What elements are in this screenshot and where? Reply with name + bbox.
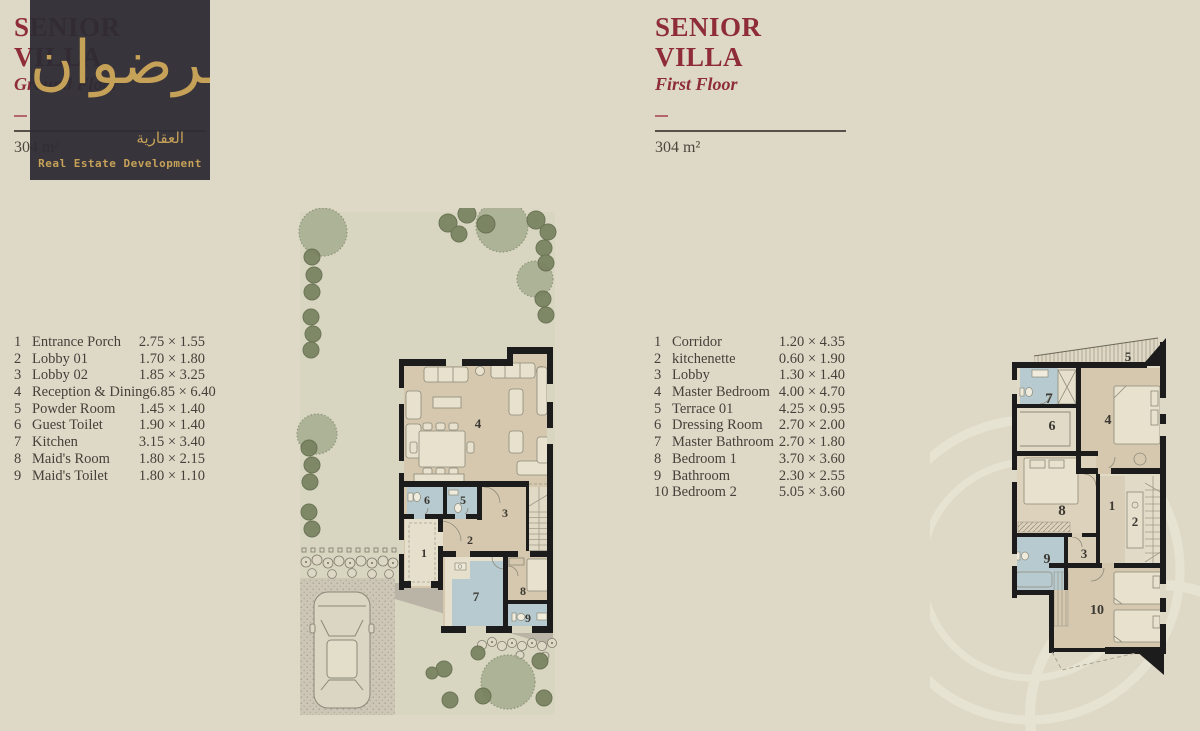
- room-name: Maid's Room: [32, 451, 139, 468]
- room-name: Terrace 01: [672, 401, 779, 418]
- legend-row: 3Lobby 021.85 × 3.25: [14, 367, 205, 384]
- legend-row: 5Terrace 014.25 × 0.95: [654, 401, 845, 418]
- room-name: Dressing Room: [672, 417, 779, 434]
- legend-row: 8Bedroom 13.70 × 3.60: [654, 451, 845, 468]
- room-number: 4: [654, 384, 672, 401]
- room-number: 2: [654, 351, 672, 368]
- divider-line: [655, 130, 846, 132]
- room-name: Lobby: [672, 367, 779, 384]
- room-dimensions: 2.70 × 1.80: [779, 434, 845, 451]
- room-dimensions: 0.60 × 1.90: [779, 351, 845, 368]
- car-icon: [310, 592, 374, 708]
- room-number: 1: [654, 334, 672, 351]
- room-dimensions: 4.25 × 0.95: [779, 401, 845, 418]
- room-name: Entrance Porch: [32, 334, 139, 351]
- room-number: 8: [654, 451, 672, 468]
- room-dimensions: 4.00 × 4.70: [779, 384, 845, 401]
- brand-logo: الرضوان العقارية Real Estate Development: [30, 0, 210, 180]
- shower-stall: [1058, 370, 1076, 404]
- room-label-5: 5: [1125, 349, 1132, 364]
- ground-floor-legend: 1Entrance Porch2.75 × 1.55 2Lobby 011.70…: [14, 334, 205, 484]
- room-number: 6: [14, 417, 32, 434]
- accent-dash: [655, 115, 668, 117]
- room-number: 7: [14, 434, 32, 451]
- legend-row: 1Corridor1.20 × 4.35: [654, 334, 845, 351]
- room-dimensions: 2.30 × 2.55: [779, 468, 845, 485]
- legend-row: 1Entrance Porch2.75 × 1.55: [14, 334, 205, 351]
- room-dimensions: 1.80 × 2.15: [139, 451, 205, 468]
- legend-row: 4Master Bedroom4.00 × 4.70: [654, 384, 845, 401]
- floor-subtitle: First Floor: [655, 73, 855, 95]
- logo-arabic-calligraphy: الرضوان: [30, 4, 210, 122]
- room-label-1: 1: [1109, 498, 1116, 513]
- legend-row: 6Dressing Room2.70 × 2.00: [654, 417, 845, 434]
- room-number: 9: [654, 468, 672, 485]
- room-name: Maid's Toilet: [32, 468, 139, 485]
- area-value: 304 m²: [655, 139, 855, 157]
- accent-dash: [14, 115, 27, 117]
- logo-tagline: Real Estate Development: [30, 157, 210, 170]
- room-dimensions: 5.05 × 3.60: [779, 484, 845, 501]
- room-label-3: 3: [502, 506, 508, 520]
- room-number: 10: [654, 484, 672, 501]
- logo-arabic-subtitle: العقارية: [136, 129, 184, 147]
- legend-row: 9Maid's Toilet1.80 × 1.10: [14, 468, 205, 485]
- room-name: Guest Toilet: [32, 417, 139, 434]
- room-dimensions: 3.70 × 3.60: [779, 451, 845, 468]
- room-label-4: 4: [475, 416, 482, 431]
- legend-row: 7Master Bathroom2.70 × 1.80: [654, 434, 845, 451]
- legend-row: 8Maid's Room1.80 × 2.15: [14, 451, 205, 468]
- first-floor-plan: 1 2 3 4 5 6 7 8 9 10: [930, 335, 1200, 731]
- room-number: 3: [14, 367, 32, 384]
- legend-row: 2kitchenette0.60 × 1.90: [654, 351, 845, 368]
- room-number: 3: [654, 367, 672, 384]
- room-dimensions: 1.70 × 1.80: [139, 351, 205, 368]
- room-label-2: 2: [467, 533, 473, 547]
- stairs: [529, 486, 549, 556]
- brochure-page: SENIOR VILLA Ground Floor 304 m² الرضوان…: [0, 0, 1200, 731]
- room-name: Lobby 02: [32, 367, 139, 384]
- room-label-4: 4: [1105, 413, 1112, 428]
- room-dimensions: 3.15 × 3.40: [139, 434, 205, 451]
- room-number: 9: [14, 468, 32, 485]
- room-label-6: 6: [424, 493, 430, 507]
- room-dimensions: 1.45 × 1.40: [139, 401, 205, 418]
- room-label-8: 8: [520, 584, 526, 598]
- room-label-2: 2: [1132, 514, 1139, 529]
- room-dimensions: 1.85 × 3.25: [139, 367, 205, 384]
- room-name: Bathroom: [672, 468, 779, 485]
- room-number: 2: [14, 351, 32, 368]
- room-name: Bedroom 1: [672, 451, 779, 468]
- first-floor-legend: 1Corridor1.20 × 4.35 2kitchenette0.60 × …: [654, 334, 845, 501]
- room-dimensions: 1.90 × 1.40: [139, 417, 205, 434]
- room-label-3: 3: [1081, 546, 1088, 561]
- legend-row: 6Guest Toilet1.90 × 1.40: [14, 417, 205, 434]
- room-label-6: 6: [1049, 419, 1056, 434]
- room-dimensions: 1.30 × 1.40: [779, 367, 845, 384]
- room-number: 4: [14, 384, 32, 401]
- room-dimensions: 1.80 × 1.10: [139, 468, 205, 485]
- room-name: kitchenette: [672, 351, 779, 368]
- room-number: 5: [654, 401, 672, 418]
- room-label-7: 7: [473, 589, 480, 604]
- ground-floor-plan: 1 2 3 4 5 6 7 8 9: [296, 208, 558, 720]
- room-name: Master Bathroom: [672, 434, 779, 451]
- first-floor-title-block: SENIOR VILLA First Floor 304 m²: [655, 12, 855, 157]
- room-label-5: 5: [460, 493, 466, 507]
- page-title: SENIOR VILLA: [655, 12, 855, 72]
- room-label-8: 8: [1058, 503, 1066, 519]
- room-dimensions: 6.85 × 6.40: [150, 384, 216, 401]
- room-name: Powder Room: [32, 401, 139, 418]
- corridor: [1100, 476, 1125, 568]
- room-dimensions: 2.75 × 1.55: [139, 334, 205, 351]
- room-label-7: 7: [1045, 391, 1053, 407]
- legend-row: 5Powder Room1.45 × 1.40: [14, 401, 205, 418]
- room-label-1: 1: [421, 546, 427, 560]
- room-label-9: 9: [525, 611, 531, 625]
- room-name: Master Bedroom: [672, 384, 779, 401]
- legend-row: 3Lobby1.30 × 1.40: [654, 367, 845, 384]
- room-number: 5: [14, 401, 32, 418]
- legend-row: 2Lobby 011.70 × 1.80: [14, 351, 205, 368]
- room-name: Bedroom 2: [672, 484, 779, 501]
- room-number: 1: [14, 334, 32, 351]
- legend-row: 4Reception & Dining6.85 × 6.40: [14, 384, 205, 401]
- legend-row: 10Bedroom 25.05 × 3.60: [654, 484, 845, 501]
- room-label-10: 10: [1090, 603, 1104, 618]
- room-number: 8: [14, 451, 32, 468]
- room-name: Lobby 01: [32, 351, 139, 368]
- room-number: 6: [654, 417, 672, 434]
- legend-row: 7Kitchen3.15 × 3.40: [14, 434, 205, 451]
- room-label-9: 9: [1044, 552, 1051, 567]
- room-name: Kitchen: [32, 434, 139, 451]
- room-number: 7: [654, 434, 672, 451]
- legend-row: 9Bathroom2.30 × 2.55: [654, 468, 845, 485]
- room-name: Reception & Dining: [32, 384, 150, 401]
- room-dimensions: 1.20 × 4.35: [779, 334, 845, 351]
- room-name: Corridor: [672, 334, 779, 351]
- room-dimensions: 2.70 × 2.00: [779, 417, 845, 434]
